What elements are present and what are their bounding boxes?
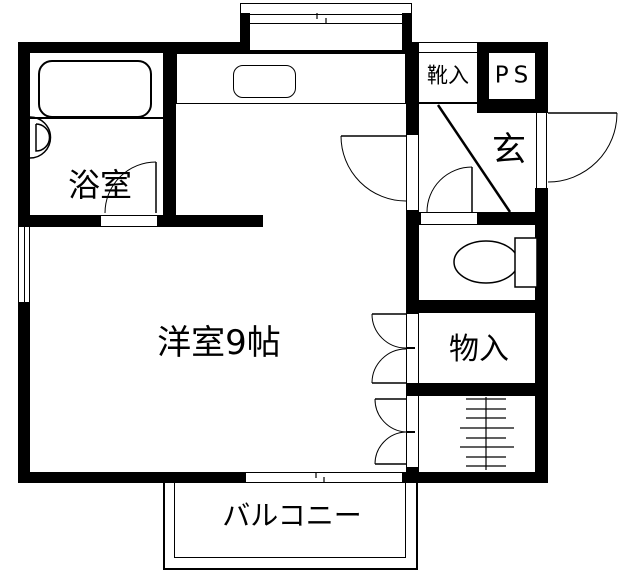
wall-bottom-right	[402, 472, 548, 483]
toilet-tank	[515, 238, 537, 287]
bathtub	[38, 60, 152, 118]
main-room-label: 洋室9帖	[157, 326, 281, 360]
wall-left-upper	[18, 42, 30, 227]
kitchen-bay-frame	[240, 3, 412, 53]
wall-bathroom-bottom-right	[157, 215, 263, 227]
wall-mid-middle	[406, 210, 419, 314]
toilet-door-swing	[427, 167, 472, 212]
storage-door-swing-top	[372, 314, 406, 348]
washbasin	[30, 117, 51, 158]
wall-bathroom-bottom-left	[18, 215, 101, 227]
closet-door-swing-bottom	[375, 432, 406, 464]
hall-door-swing	[341, 136, 406, 201]
closet-door-swing-top	[375, 399, 406, 432]
wall-mid-lower	[406, 467, 419, 483]
entrance-label: 玄	[492, 133, 526, 167]
closet-door-jamb	[406, 396, 419, 467]
storage-label: 物入	[449, 335, 509, 365]
wall-left-lower	[18, 302, 30, 483]
toilet-door-threshold	[421, 212, 477, 225]
kitchen-sink	[233, 65, 296, 98]
kitchen-bay-post-left	[240, 13, 250, 53]
wall-bathroom-right	[163, 42, 176, 215]
wall-storage-bottom	[406, 383, 548, 396]
ladder	[460, 397, 514, 470]
shoe-cabinet-bottom-line	[419, 102, 477, 104]
bathtub-deck-line	[30, 117, 163, 119]
side-window-left-glass-line	[24, 227, 26, 302]
wall-mid-upper	[406, 42, 419, 135]
sliding-window-bottom	[246, 472, 402, 483]
sliding-window-top-line1	[250, 14, 402, 15]
balcony-label: バルコニー	[222, 502, 361, 530]
wall-right-lower	[535, 188, 548, 483]
hall-door-threshold	[406, 135, 419, 210]
storage-door-swing-bottom	[372, 349, 406, 383]
floor-plan: 浴室 洋室9帖 玄 靴入 PS 物入 バルコニー	[0, 0, 629, 582]
wall-genkan-bottom-left	[406, 212, 421, 225]
toilet-bowl	[454, 241, 518, 283]
washbasin-bowl	[36, 124, 50, 151]
shoe-cabinet-label: 靴入	[427, 66, 469, 87]
storage-door-jamb	[406, 314, 419, 383]
bathroom-label: 浴室	[68, 169, 132, 201]
sliding-window-top-line2	[250, 23, 402, 24]
entrance-door-threshold	[536, 113, 547, 188]
wall-top-left	[18, 42, 242, 53]
side-window-left	[18, 227, 30, 302]
pipe-space-label: PS	[495, 65, 533, 88]
entrance-door-swing	[548, 113, 617, 182]
wall-toilet-bottom	[406, 300, 548, 313]
bathroom-door-threshold	[101, 215, 157, 227]
shoe-cabinet-top	[419, 42, 477, 53]
wall-bottom-left	[18, 472, 246, 483]
